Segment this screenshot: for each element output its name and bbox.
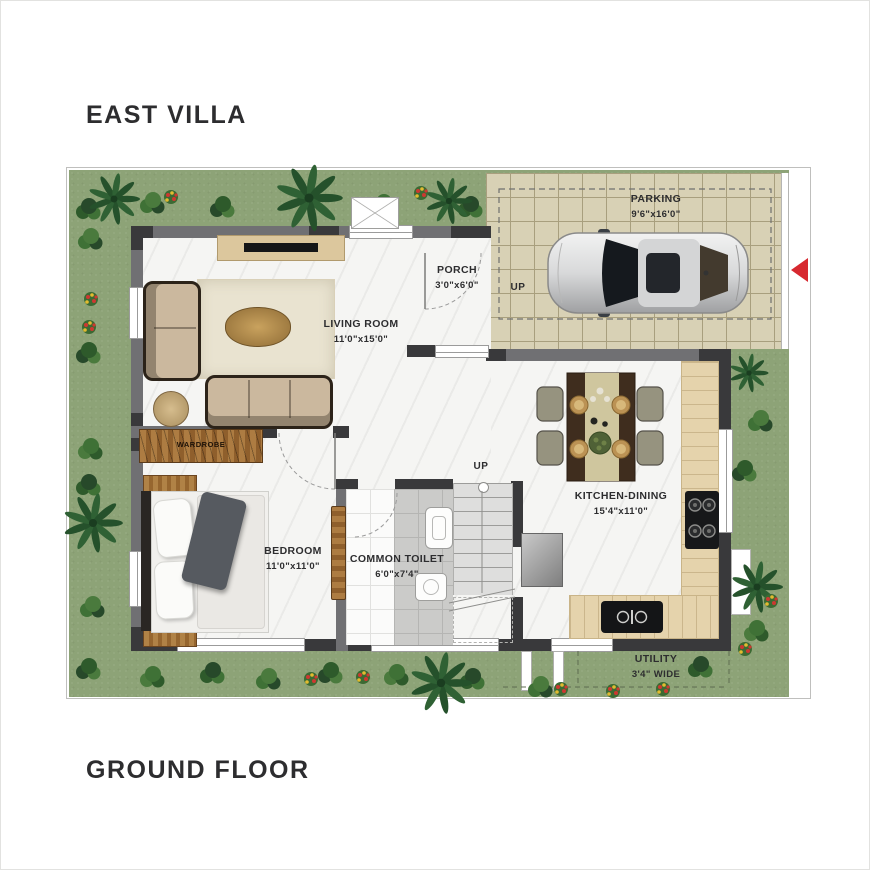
wall-segment — [486, 349, 731, 361]
ac-outdoor-unit — [351, 197, 399, 229]
label-utility: UTILITY 3'4" WIDE — [632, 652, 680, 682]
window — [551, 638, 613, 652]
label-up-stairs: UP — [474, 461, 489, 472]
window-projection — [731, 549, 751, 615]
room-name: PARKING — [631, 192, 681, 207]
wall-segment — [486, 349, 506, 361]
utility-post — [521, 651, 532, 691]
floor-title: GROUND FLOOR — [86, 756, 310, 785]
stove-hob — [685, 491, 719, 549]
washbasin-bowl — [432, 516, 446, 540]
window-line — [137, 552, 138, 606]
bed-headboard — [141, 491, 151, 631]
room-name: LIVING ROOM — [324, 317, 399, 332]
room-name: BEDROOM — [264, 544, 322, 559]
sofa-cushion-divider — [289, 380, 291, 418]
sofa-three-seater — [205, 375, 333, 429]
room-dims: 11'0"x15'0" — [324, 332, 399, 347]
wall-segment — [131, 226, 143, 250]
sink-basins — [601, 601, 663, 633]
stair-newel — [478, 482, 489, 493]
room-name: KITCHEN-DINING — [575, 489, 668, 504]
room-dims: 9'6"x16'0" — [631, 207, 681, 222]
entry-gate-strip — [781, 173, 789, 349]
label-porch: PORCH 3'0"x6'0" — [435, 263, 479, 293]
toilet-door-leaf — [331, 506, 346, 600]
window — [435, 345, 489, 358]
page-title: EAST VILLA — [86, 101, 247, 130]
window-line — [726, 430, 727, 532]
coffee-table — [225, 307, 291, 347]
room-dims: 3'4" WIDE — [632, 667, 680, 682]
window — [129, 287, 144, 339]
label-kitchen-dining: KITCHEN-DINING 15'4"x11'0" — [575, 489, 668, 519]
label-up-porch: UP — [511, 282, 526, 293]
wall-segment — [333, 426, 349, 438]
staircase-treads — [453, 483, 513, 595]
wardrobe-label: WARDROBE — [140, 440, 262, 449]
refrigerator — [521, 533, 563, 587]
room-dims: 11'0"x11'0" — [264, 559, 322, 574]
window-line — [350, 232, 412, 233]
window-line — [552, 645, 612, 646]
window-line — [372, 645, 498, 646]
kitchen-sink — [601, 601, 663, 633]
wall-segment — [451, 226, 491, 238]
wall-segment — [699, 349, 731, 361]
label-common-toilet: COMMON TOILET 6'0"x7'4" — [350, 552, 444, 582]
window-line — [436, 352, 488, 353]
sofa-cushion-divider — [154, 327, 196, 329]
utility-post — [553, 651, 564, 691]
wall-segment — [395, 479, 453, 489]
window — [718, 429, 733, 533]
washbasin — [425, 507, 453, 549]
label-living-room: LIVING ROOM 11'0"x15'0" — [324, 317, 399, 347]
room-name: UTILITY — [632, 652, 680, 667]
room-dims: 15'4"x11'0" — [575, 504, 668, 519]
tv-screen — [244, 243, 318, 252]
label-bedroom: BEDROOM 11'0"x11'0" — [264, 544, 322, 574]
window-line — [137, 288, 138, 338]
room-name: PORCH — [435, 263, 479, 278]
label-parking: PARKING 9'6"x16'0" — [631, 192, 681, 222]
round-side-table — [153, 391, 189, 427]
staircase-below-break — [453, 597, 513, 643]
wall-segment — [407, 345, 437, 357]
floor-plan-page: EAST VILLA GROUND FLOOR WARDROBE — [0, 0, 870, 870]
room-dims: 6'0"x7'4" — [350, 567, 444, 582]
sofa-two-seater — [143, 281, 201, 381]
tv-console — [217, 235, 345, 261]
wardrobe: WARDROBE — [139, 429, 263, 463]
sofa-cushion-divider — [248, 380, 250, 418]
wall-segment — [336, 479, 358, 489]
room-dims: 3'0"x6'0" — [435, 278, 479, 293]
room-name: COMMON TOILET — [350, 552, 444, 567]
stove-burners — [685, 491, 719, 549]
entry-direction-arrow-icon — [791, 258, 808, 282]
